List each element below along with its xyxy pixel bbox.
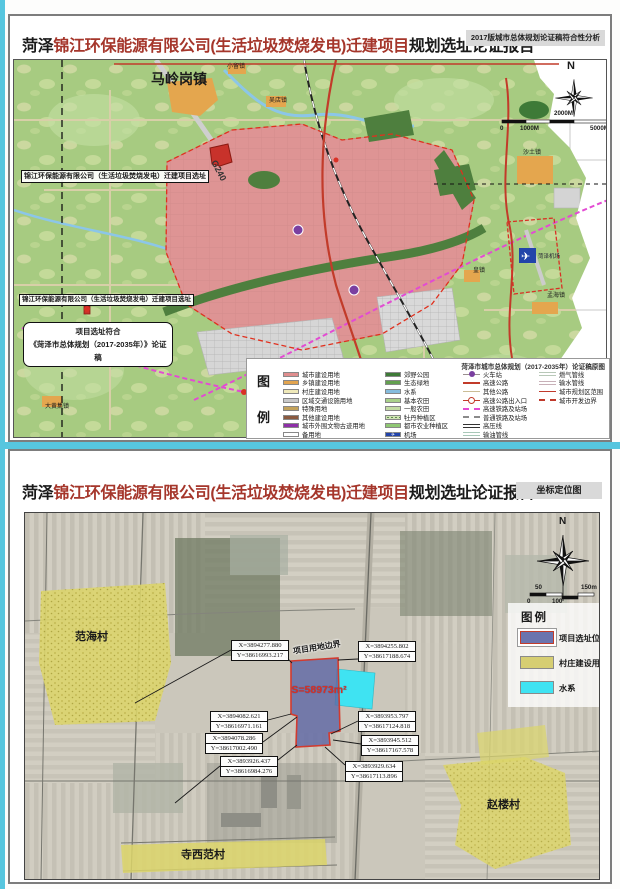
report-page: { "theme":{ "accent_strip":"#57C6DF","pa…	[0, 0, 620, 889]
coord-x: X=3893929.634	[346, 762, 402, 772]
north-label: N	[567, 60, 575, 72]
scale-bar	[502, 120, 607, 123]
oil-pipeline-symbol	[463, 432, 480, 436]
legend-item: 生态绿地	[385, 379, 448, 388]
legend-item: 城市建设用地	[283, 370, 365, 379]
legend-label: 项目选址位置	[559, 632, 600, 644]
panel-separator-strip	[0, 442, 620, 449]
coord-x: X=3893953.797	[359, 712, 415, 722]
legend-item-site: 项目选址位置	[520, 631, 600, 644]
top-panel: 菏泽锦江环保能源有限公司(生活垃圾焚烧发电)迁建项目规划选址论证报告 2017版…	[8, 14, 612, 442]
site-area-label: S=58973m²	[287, 685, 351, 697]
legend-item: 牡丹种植区	[385, 413, 448, 422]
legend-item: 特殊用地	[283, 404, 365, 413]
callout-line1: 项目选址符合	[27, 325, 169, 338]
town-label-huang: 皇镇	[473, 268, 485, 275]
coord-callout-3: X=3894082.621Y=38616971.161	[210, 711, 268, 732]
coord-callout-2: X=3894255.802Y=38617188.674	[358, 641, 416, 662]
legend-caption: 图例	[521, 609, 548, 625]
legend-swatch	[283, 423, 299, 428]
scale-1000: 1000M	[520, 125, 539, 132]
legend-label: 机场	[404, 430, 417, 439]
legend-swatch	[283, 380, 299, 385]
town-label-xiaoliu: 小留镇	[227, 64, 245, 71]
airplane-icon: ✈	[521, 251, 530, 263]
planning-boundary-symbol	[539, 391, 556, 392]
title-highlight: 锦江环保能源有限公司(生活垃圾焚烧发电)迁建项目	[53, 485, 408, 502]
scale-2000: 2000M	[554, 110, 573, 117]
town-label-wudian: 吴店镇	[269, 98, 287, 105]
legend-item: 城市开发边界	[539, 396, 603, 405]
coord-y: Y=38617002.490	[206, 744, 262, 753]
legend-swatch	[283, 415, 299, 420]
legend-item: 其他公路	[463, 387, 527, 396]
village-label-zhaolou: 赵楼村	[487, 799, 520, 811]
hsr-symbol	[463, 408, 480, 410]
legend-swatch	[283, 389, 299, 394]
legend-item: 输油管线	[463, 430, 527, 439]
town-label-dahuangji: 大黄集镇	[45, 404, 69, 411]
legend-label: 城市开发边界	[559, 396, 597, 405]
coord-y: Y=38617188.674	[359, 652, 415, 661]
legend-col-landuse: 城市建设用地 乡镇建设用地 村庄建设用地 区域交通设施用地 特殊用地 其他建设用…	[283, 370, 365, 439]
legend-item: 高速公路	[463, 379, 527, 388]
legend-swatch-water	[520, 681, 554, 694]
scale-50: 50	[535, 584, 542, 591]
water-pipeline-symbol	[539, 381, 556, 385]
legend-item: 备用地	[283, 430, 365, 439]
coord-callout-8: X=3893929.634Y=38617113.896	[345, 761, 403, 782]
top-panel-title: 菏泽锦江环保能源有限公司(生活垃圾焚烧发电)迁建项目规划选址论证报告	[22, 32, 534, 56]
legend-col-lines: 燃气管线 输水管线 城市规划区范围 城市开发边界	[539, 370, 603, 404]
callout-line2: 《菏泽市总体规划（2017-2035年）》论证稿	[27, 338, 169, 364]
airplane-icon: ✈	[385, 432, 401, 437]
legend-label: 输油管线	[483, 430, 508, 439]
village-label-fanhai: 范海村	[75, 631, 108, 643]
highway-symbol	[463, 382, 480, 384]
legend-item: 村庄建设用地	[283, 387, 365, 396]
gas-pipeline-symbol	[539, 372, 556, 376]
coord-y: Y=38617124.818	[359, 722, 415, 731]
bottom-panel-badge: 坐标定位图	[516, 482, 602, 499]
scale-150: 150m	[581, 584, 597, 591]
legend-swatch	[385, 423, 401, 428]
coordinate-map: N 范海村 赵楼村 寺西范村 项目用地边界 S=58973m² X=389427…	[24, 512, 600, 880]
coord-callout-6: X=3893953.797Y=38617124.818	[358, 711, 416, 732]
conformity-callout: 项目选址符合 《菏泽市总体规划（2017-2035年）》论证稿	[23, 322, 173, 367]
coord-callout-1: X=3894277.880Y=38616993.217	[231, 640, 289, 661]
coord-x: X=3894082.621	[211, 712, 267, 722]
legend-col-green: 郊野公园 生态绿地 水系 基本农田 一般农田 牡丹种植区 都市农业种植区 ✈机场	[385, 370, 448, 439]
coord-callout-7: X=3893945.512Y=38617167.578	[361, 735, 419, 756]
title-prefix: 菏泽	[22, 485, 53, 502]
rail-symbol	[463, 416, 480, 418]
scale-5000: 5000M	[590, 125, 607, 132]
legend-item: 区域交通设施用地	[283, 396, 365, 405]
site-annotation-mid: 锦江环保能源有限公司（生活垃圾焚烧发电）迁建项目选址	[19, 294, 194, 306]
coord-y: Y=38616984.276	[221, 767, 277, 776]
master-plan-legend: 菏泽市城市总体规划（2017-2035年）论证稿原图 图 例 城市建设用地 乡镇…	[246, 358, 610, 439]
legend-swatch	[385, 398, 401, 403]
legend-swatch	[283, 406, 299, 411]
legend-item: 郊野公园	[385, 370, 448, 379]
north-label: N	[559, 516, 566, 527]
town-label-shatu: 沙土镇	[523, 150, 541, 157]
legend-item: 高速公路出入口	[463, 396, 527, 405]
legend-item: 高速铁路及站场	[463, 404, 527, 413]
coord-x: X=3893926.437	[221, 757, 277, 767]
legend-label: 水系	[559, 682, 575, 694]
coord-x: X=3894277.880	[232, 641, 288, 651]
legend-item: 火车站	[463, 370, 527, 379]
coord-callout-5: X=3893926.437Y=38616984.276	[220, 756, 278, 777]
legend-swatch-site	[520, 631, 554, 644]
legend-item: 水系	[385, 387, 448, 396]
coord-y: Y=38617113.896	[346, 772, 402, 781]
legend-label: 备用地	[302, 430, 321, 439]
legend-item: 燃气管线	[539, 370, 603, 379]
legend-item: 城市规划区范围	[539, 387, 603, 396]
coord-callout-4: X=3894078.286Y=38617002.490	[205, 733, 263, 754]
coord-x: X=3893945.512	[362, 736, 418, 746]
station-symbol	[463, 374, 480, 375]
powerline-symbol	[463, 424, 480, 428]
legend-item: 输水管线	[539, 379, 603, 388]
legend-swatch-dotted	[385, 415, 401, 420]
coord-x: X=3894255.802	[359, 642, 415, 652]
top-panel-badge: 2017版城市总体规划论证稿符合性分析	[466, 30, 605, 46]
legend-item: 其他建设用地	[283, 413, 365, 422]
bottom-panel-title: 菏泽锦江环保能源有限公司(生活垃圾焚烧发电)迁建项目规划选址论证报告	[22, 479, 534, 503]
legend-item-village: 村庄建设用地	[520, 656, 600, 669]
interchange-symbol	[463, 400, 480, 401]
airport-label: 菏泽机场	[538, 254, 560, 260]
legend-item: 城市外围文物古迹用地	[283, 422, 365, 431]
legend-caption-2: 例	[257, 407, 270, 426]
legend-swatch	[283, 398, 299, 403]
coordinate-map-legend: 图例 项目选址位置 村庄建设用地 水系	[508, 603, 600, 707]
village-label-sixifan: 寺西范村	[181, 849, 225, 861]
legend-label: 村庄建设用地	[559, 657, 600, 669]
legend-swatch-village	[520, 656, 554, 669]
site-annotation-top: 锦江环保能源有限公司（生活垃圾焚烧发电）迁建项目选址	[21, 170, 209, 183]
title-prefix: 菏泽	[22, 38, 53, 55]
coord-y: Y=38617167.578	[362, 746, 418, 755]
title-highlight: 锦江环保能源有限公司(生活垃圾焚烧发电)迁建项目	[53, 38, 408, 55]
coord-x: X=3894078.286	[206, 734, 262, 744]
legend-item: 都市农业种植区	[385, 422, 448, 431]
legend-swatch	[385, 389, 401, 394]
legend-item: 基本农田	[385, 396, 448, 405]
legend-col-transport: 火车站 高速公路 其他公路 高速公路出入口 高速铁路及站场 普通铁路及站场 高压…	[463, 370, 527, 439]
coord-y: Y=38616993.217	[232, 651, 288, 660]
bottom-panel: 菏泽锦江环保能源有限公司(生活垃圾焚烧发电)迁建项目规划选址论证报告 坐标定位图	[8, 449, 612, 884]
scale-0: 0	[500, 125, 503, 132]
legend-item: 普通铁路及站场	[463, 413, 527, 422]
legend-swatch	[283, 432, 299, 437]
town-label-malinggang: 马岭岗镇	[151, 72, 207, 87]
legend-item: ✈机场	[385, 430, 448, 439]
town-label-menghai: 孟海镇	[547, 293, 565, 300]
legend-caption-1: 图	[257, 371, 270, 390]
legend-swatch	[385, 372, 401, 377]
legend-item: 一般农田	[385, 404, 448, 413]
growth-boundary-symbol	[539, 399, 556, 401]
legend-item: 高压线	[463, 422, 527, 431]
road-symbol	[463, 391, 480, 392]
coord-y: Y=38616971.161	[211, 722, 267, 731]
legend-swatch	[385, 406, 401, 411]
legend-swatch	[283, 372, 299, 377]
legend-item-water: 水系	[520, 681, 575, 694]
legend-item: 乡镇建设用地	[283, 379, 365, 388]
legend-swatch	[385, 380, 401, 385]
